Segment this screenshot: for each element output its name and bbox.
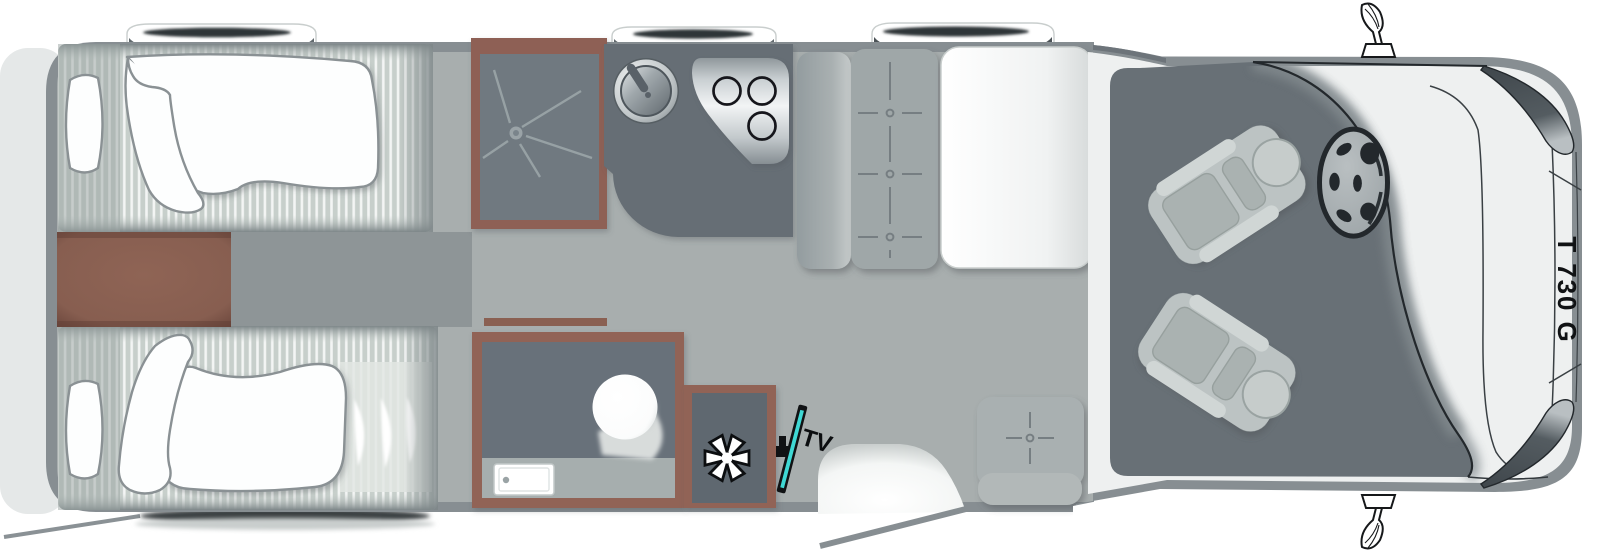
svg-text:T 730 G: T 730 G <box>1552 236 1582 343</box>
